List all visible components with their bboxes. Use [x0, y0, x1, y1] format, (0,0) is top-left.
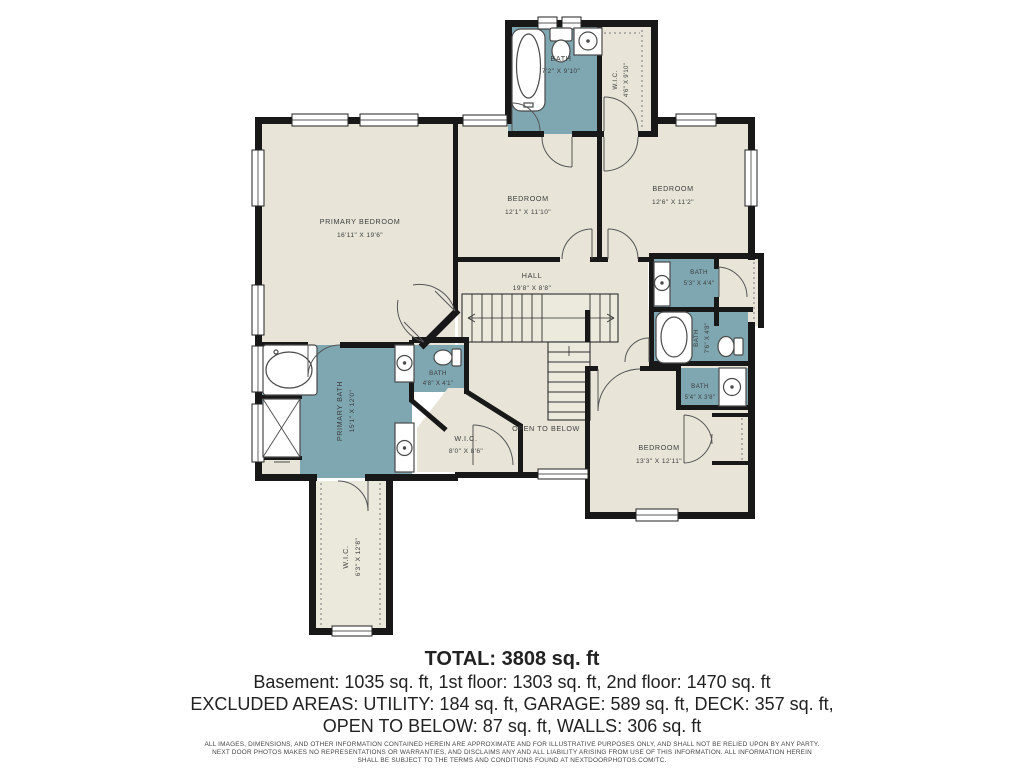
- room-wic-bottom: [316, 481, 386, 628]
- label-primary-bath: PRIMARY BATH: [335, 381, 344, 441]
- window: [252, 150, 264, 206]
- label-water-closet-dims: 4'8" X 4'1": [423, 381, 454, 387]
- label-bedroom-bottom-dims: 13'3" X 12'11": [636, 458, 682, 465]
- label-wic-bottom-dims: 6'3" X 12'8": [355, 538, 362, 577]
- label-bath-b-dims: 7'6" X 4'8": [705, 323, 711, 354]
- disclaimer-line-1: ALL IMAGES, DIMENSIONS, AND OTHER INFORM…: [0, 741, 1024, 749]
- label-primary-bedroom-dims: 16'11" X 19'6": [337, 232, 383, 239]
- label-wic-bottom: W.I.C.: [341, 545, 350, 568]
- label-open-to-below: OPEN TO BELOW: [512, 424, 580, 433]
- window: [636, 509, 678, 521]
- room-bedrooms-upper: [458, 123, 748, 262]
- window: [538, 17, 557, 29]
- label-water-closet: BATH: [429, 370, 447, 377]
- floor-areas-text: Basement: 1035 sq. ft, 1st floor: 1303 s…: [0, 671, 1024, 693]
- label-wic-top-dims: 4'6" X 9'10": [624, 63, 630, 97]
- vanity-sink: [395, 423, 414, 472]
- window: [745, 150, 757, 206]
- label-bedroom-right-dims: 12'6" X 11'2": [652, 199, 694, 206]
- vanity-sink: [719, 368, 746, 406]
- label-bath-a-dims: 5'3" X 4'4": [684, 281, 715, 287]
- label-bath-b: BATH: [693, 329, 700, 347]
- floorplan-page: BATH 7'2" X 9'10" W.I.C. 4'6" X 9'10" PR…: [0, 0, 1024, 768]
- label-wic-top: W.I.C.: [612, 70, 619, 89]
- label-bath-top-dims: 7'2" X 9'10": [542, 68, 581, 75]
- window: [562, 17, 581, 29]
- shower: [263, 399, 300, 462]
- label-bath-a: BATH: [690, 269, 708, 276]
- label-wic-mid: W.I.C.: [454, 434, 477, 443]
- window: [252, 404, 264, 462]
- label-bath-c: BATH: [691, 383, 709, 390]
- label-bedroom-bottom: BEDROOM: [638, 443, 679, 452]
- sink: [574, 28, 602, 55]
- window: [360, 114, 418, 126]
- label-bedroom-mid-dims: 12'1" X 11'10": [505, 209, 551, 216]
- area-summary: TOTAL: 3808 sq. ft Basement: 1035 sq. ft…: [0, 648, 1024, 765]
- disclaimer-line-2: NEXT DOOR PHOTOS MAKES NO REPRESENTATION…: [0, 749, 1024, 757]
- excluded-areas-text-2: OPEN TO BELOW: 87 sq. ft, WALLS: 306 sq.…: [0, 715, 1024, 737]
- label-bedroom-right: BEDROOM: [652, 184, 693, 193]
- label-wic-mid-dims: 8'0" X 8'6": [449, 448, 484, 455]
- label-hall-dims: 19'8" X 8'8": [513, 285, 552, 292]
- label-primary-bath-dims: 15'1" X 12'0": [349, 390, 356, 433]
- vanity-sink: [654, 262, 670, 306]
- label-primary-bedroom: PRIMARY BEDROOM: [320, 217, 401, 226]
- disclaimer: ALL IMAGES, DIMENSIONS, AND OTHER INFORM…: [0, 741, 1024, 765]
- disclaimer-line-3: SHALL BE SUBJECT TO THE TERMS AND CONDIT…: [0, 757, 1024, 765]
- toilet: [434, 349, 461, 366]
- bathtub: [656, 312, 692, 363]
- label-bedroom-mid: BEDROOM: [507, 194, 548, 203]
- excluded-areas-text-1: EXCLUDED AREAS: UTILITY: 184 sq. ft, GAR…: [0, 693, 1024, 715]
- toilet: [718, 337, 743, 357]
- label-hall: HALL: [522, 271, 542, 280]
- second-floor-plan: BATH 7'2" X 9'10" W.I.C. 4'6" X 9'10" PR…: [0, 0, 1024, 650]
- floorplan-svg: BATH 7'2" X 9'10" W.I.C. 4'6" X 9'10" PR…: [0, 0, 1024, 650]
- window: [676, 114, 716, 126]
- vanity-sink: [395, 345, 414, 382]
- room-alcove: [262, 458, 300, 474]
- window: [332, 626, 372, 636]
- total-area-text: TOTAL: 3808 sq. ft: [0, 648, 1024, 671]
- label-bath-top: BATH: [550, 54, 571, 63]
- window: [463, 115, 507, 126]
- window: [538, 469, 588, 479]
- window: [252, 285, 264, 335]
- window: [292, 114, 348, 126]
- label-bath-c-dims: 5'4" X 3'8": [685, 395, 716, 401]
- bathtub: [512, 29, 545, 111]
- window: [252, 346, 264, 392]
